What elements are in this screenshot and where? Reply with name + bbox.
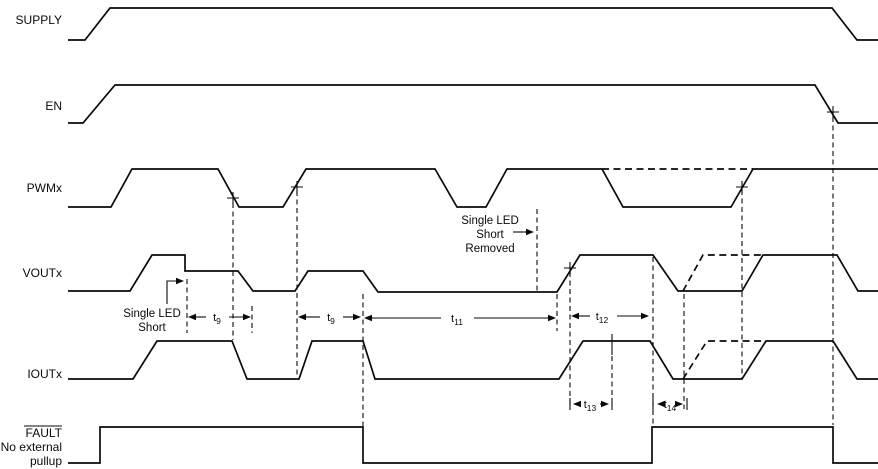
t14-measure: t14 [653, 398, 687, 413]
supply-label: SUPPLY [16, 13, 62, 27]
single-led-short-arrow-icon [176, 278, 184, 284]
timing-diagram-canvas: SUPPLY EN PWMx VOUTx IOUTx FAULT No exte… [0, 0, 878, 469]
en-label: EN [45, 99, 62, 113]
fault-note-line1: No external [1, 440, 62, 454]
single-led-short-line1: Single LED [123, 308, 181, 320]
single-led-short-removed-line2: Short [476, 229, 504, 241]
t9-label-1: t9 [213, 312, 221, 326]
t14-label: t14 [664, 399, 677, 413]
single-led-short-removed-line3: Removed [465, 243, 514, 255]
supply-waveform [68, 8, 878, 40]
single-led-short-removed-annotation: Single LED Short Removed [461, 215, 534, 255]
ioutx-waveform [68, 341, 878, 379]
pwmx-waveform [68, 169, 878, 207]
single-led-short-removed-line1: Single LED [461, 215, 519, 227]
t13-measure: t13 [570, 398, 612, 413]
voutx-waveform [68, 255, 878, 292]
en-waveform [68, 85, 878, 123]
ioutx-label: IOUTx [27, 367, 62, 381]
t12-measure: t12 [571, 311, 649, 325]
fault-waveform [68, 427, 878, 463]
timing-diagram: SUPPLY EN PWMx VOUTx IOUTx FAULT No exte… [0, 0, 878, 469]
voutx-label: VOUTx [23, 266, 62, 280]
tick-pwm-rise-2 [736, 181, 748, 193]
pwmx-label: PWMx [27, 181, 62, 195]
t11-label: t11 [451, 313, 463, 327]
single-led-short-line2: Short [138, 322, 166, 334]
t9-measure-2: t9 [298, 312, 361, 326]
fault-label-block: FAULT No external pullup [1, 426, 63, 468]
t11-measure: t11 [364, 313, 556, 327]
single-led-short-pointer [167, 281, 179, 304]
ioutx-waveform-dashed-alt [683, 341, 765, 379]
t9-label-2: t9 [327, 312, 335, 326]
t9-measure-1: t9 [188, 312, 251, 326]
fault-note-line2: pullup [30, 454, 62, 468]
t13-label: t13 [584, 399, 597, 413]
single-led-short-removed-arrow-icon [526, 229, 534, 235]
t12-label: t12 [596, 311, 609, 325]
fault-label: FAULT [26, 426, 63, 440]
